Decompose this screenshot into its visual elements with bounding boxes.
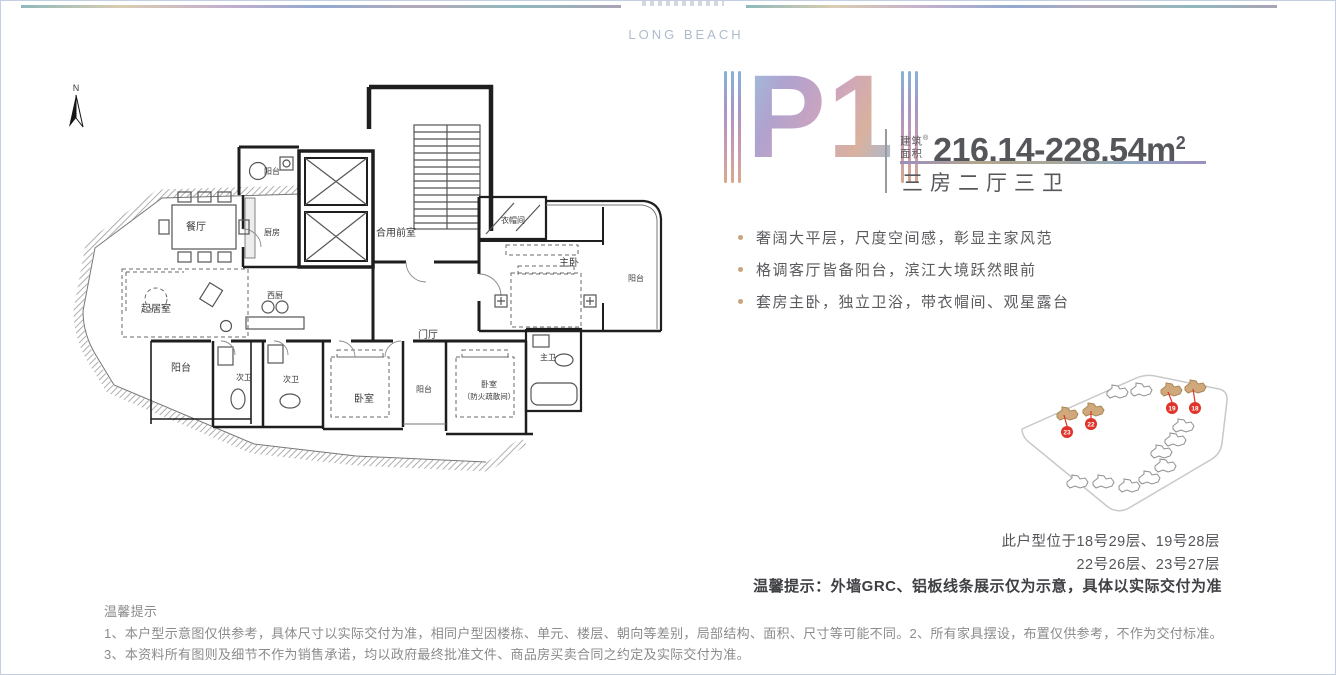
- room-label: （防火疏散间）: [463, 391, 516, 401]
- plan-code-block: P1: [724, 61, 918, 183]
- header-gradient-line-left: [21, 5, 621, 8]
- area-label: 建筑® 面积: [900, 133, 929, 160]
- area-value-sup: 2: [1176, 133, 1186, 153]
- disclaimer-line2: 3、本资料所有图则及细节不作为销售承诺，均以政府最终批准文件、商品房买卖合同之约…: [104, 644, 1223, 666]
- svg-text:N: N: [73, 83, 80, 93]
- room-label: 阳台: [416, 384, 432, 394]
- disclaimer-line1: 1、本户型示意图仅供参考，具体尺寸以实际交付为准，相同户型因楼栋、单元、楼层、朝…: [104, 623, 1223, 645]
- brand-name: LONG BEACH: [561, 27, 811, 42]
- room-label: 门厅: [418, 328, 438, 341]
- location-note-line2: 22号26层、23号27层: [1001, 554, 1220, 577]
- room-label: 餐厅: [186, 220, 206, 233]
- area-gradient-underline: [900, 161, 1206, 164]
- room-label: 合用前室: [376, 226, 416, 239]
- room-label: 主卫: [540, 352, 556, 362]
- cropped-header-text: [642, 1, 724, 6]
- feature-item: 套房主卧，独立卫浴，带衣帽间、观星露台: [738, 293, 1070, 310]
- stair-core: [369, 87, 491, 231]
- window-band-line: [83, 194, 486, 462]
- p1-decor-bars-left: [724, 71, 741, 183]
- site-plan: 23 22 19 18: [1014, 363, 1249, 518]
- registered-mark: ®: [923, 135, 929, 142]
- building-marker-label: 18: [1191, 406, 1199, 413]
- north-arrow-icon: N: [69, 83, 83, 127]
- unit-layout: 三房二厅三卫: [902, 167, 1070, 197]
- room-label: 卧室: [481, 379, 497, 389]
- building-marker-label: 19: [1168, 406, 1176, 413]
- room-label: 起居室: [141, 302, 171, 315]
- area-label-line1: 建筑: [900, 136, 923, 148]
- area-label-line2: 面积: [900, 148, 923, 160]
- elevator-shafts: [299, 151, 373, 267]
- room-label: 次卫: [236, 372, 252, 382]
- plan-code: P1: [747, 61, 895, 173]
- disclaimer-title: 温馨提示: [104, 601, 1223, 623]
- location-note: 此户型位于18号29层、19号28层 22号26层、23号27层: [1001, 531, 1220, 576]
- feature-text: 套房主卧，独立卫浴，带衣帽间、观星露台: [756, 291, 1070, 312]
- room-label: 衣帽间: [501, 215, 525, 225]
- room-label: 阳台: [628, 273, 644, 283]
- feature-text: 奢阔大平层，尺度空间感，彰显主家风范: [756, 227, 1053, 248]
- bullet-dot-icon: [738, 267, 743, 272]
- building-marker-label: 22: [1087, 422, 1095, 429]
- header-gradient-line-right: [746, 5, 1277, 8]
- feature-text: 格调客厅皆备阳台，滨江大境跃然眼前: [756, 259, 1037, 280]
- room-label: 厨房: [264, 227, 280, 237]
- west-kitchen: [246, 301, 304, 329]
- room-label: 阳台: [171, 361, 191, 374]
- bottom-rooms: [151, 329, 581, 434]
- feature-item: 奢阔大平层，尺度空间感，彰显主家风范: [738, 229, 1070, 246]
- bullet-dot-icon: [738, 235, 743, 240]
- headline-divider: [885, 129, 887, 193]
- building-marker-label: 23: [1063, 430, 1071, 437]
- room-label: 卧室: [354, 392, 374, 405]
- room-label: 西厨: [267, 291, 283, 300]
- room-label: 主卧: [559, 256, 579, 269]
- room-label: 次卫: [283, 374, 299, 384]
- delivery-note: 温馨提示：外墙GRC、铝板线条展示仅为示意，具体以实际交付为准: [753, 575, 1222, 596]
- living-room-furniture: [122, 269, 248, 337]
- location-note-line1: 此户型位于18号29层、19号28层: [1001, 531, 1220, 554]
- room-label: 阳台: [264, 166, 280, 176]
- floorplan-drawing: N: [56, 79, 696, 534]
- disclaimer-block: 温馨提示 1、本户型示意图仅供参考，具体尺寸以实际交付为准，相同户型因楼栋、单元…: [104, 601, 1223, 666]
- brochure-page: LONG BEACH N: [0, 0, 1336, 675]
- feature-item: 格调客厅皆备阳台，滨江大境跃然眼前: [738, 261, 1070, 278]
- feature-list: 奢阔大平层，尺度空间感，彰显主家风范 格调客厅皆备阳台，滨江大境跃然眼前 套房主…: [738, 229, 1070, 325]
- bullet-dot-icon: [738, 299, 743, 304]
